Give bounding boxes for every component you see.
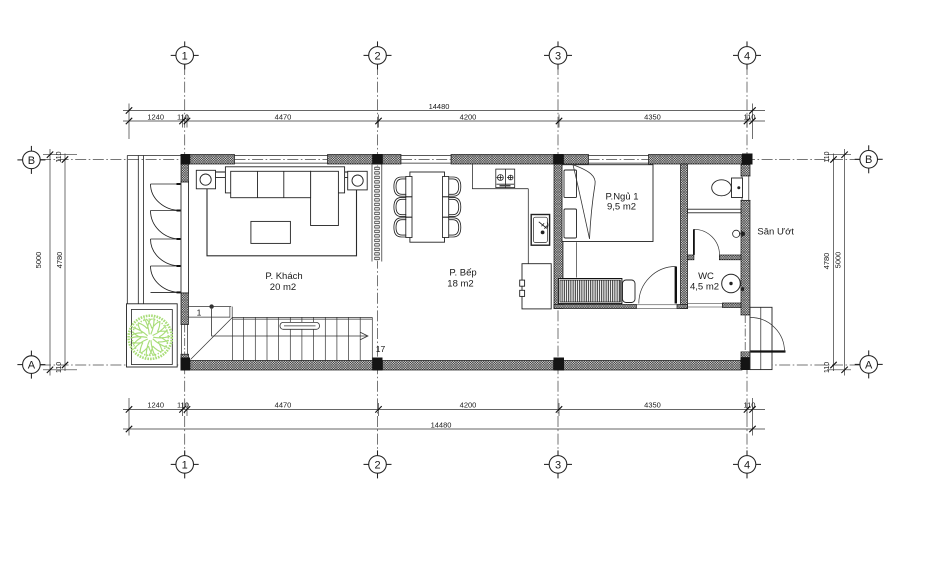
svg-text:A: A — [865, 359, 873, 371]
svg-text:4,5 m2: 4,5 m2 — [690, 282, 719, 293]
svg-text:110: 110 — [744, 401, 756, 410]
svg-text:14480: 14480 — [431, 420, 452, 429]
svg-text:4350: 4350 — [644, 401, 661, 410]
svg-text:110: 110 — [177, 401, 189, 410]
svg-text:4350: 4350 — [644, 112, 661, 121]
svg-text:9,5 m2: 9,5 m2 — [607, 202, 636, 213]
svg-text:2: 2 — [374, 459, 380, 471]
svg-text:3: 3 — [555, 50, 561, 62]
svg-text:1: 1 — [182, 459, 188, 471]
svg-text:1: 1 — [182, 50, 188, 62]
svg-text:4470: 4470 — [275, 112, 292, 121]
svg-text:110: 110 — [824, 151, 831, 162]
svg-text:1240: 1240 — [147, 112, 164, 121]
svg-text:4470: 4470 — [275, 401, 292, 410]
svg-text:4: 4 — [744, 50, 750, 62]
svg-text:14480: 14480 — [429, 102, 450, 111]
svg-text:4200: 4200 — [460, 112, 477, 121]
svg-text:17: 17 — [376, 344, 386, 354]
svg-text:A: A — [28, 360, 36, 372]
svg-text:4: 4 — [744, 459, 750, 471]
svg-text:B: B — [865, 154, 872, 166]
svg-text:WC: WC — [698, 271, 714, 282]
svg-text:4780: 4780 — [55, 252, 64, 269]
svg-text:5000: 5000 — [34, 252, 43, 269]
svg-text:1: 1 — [197, 308, 202, 318]
svg-text:110: 110 — [56, 151, 63, 162]
svg-text:4200: 4200 — [460, 401, 477, 410]
svg-text:Sân Ướt: Sân Ướt — [757, 227, 794, 238]
svg-text:110: 110 — [744, 112, 756, 121]
svg-text:B: B — [28, 155, 35, 167]
svg-text:5000: 5000 — [834, 252, 843, 269]
svg-text:110: 110 — [56, 362, 63, 373]
svg-text:18 m2: 18 m2 — [447, 279, 473, 290]
svg-text:1240: 1240 — [147, 401, 164, 410]
svg-text:P. Khách: P. Khách — [265, 271, 302, 282]
svg-text:20 m2: 20 m2 — [270, 282, 296, 293]
svg-text:P. Bếp: P. Bếp — [449, 268, 476, 279]
svg-text:110: 110 — [177, 112, 189, 121]
svg-text:2: 2 — [374, 50, 380, 62]
svg-text:4780: 4780 — [822, 253, 831, 270]
svg-text:110: 110 — [824, 362, 831, 373]
svg-text:3: 3 — [555, 459, 561, 471]
